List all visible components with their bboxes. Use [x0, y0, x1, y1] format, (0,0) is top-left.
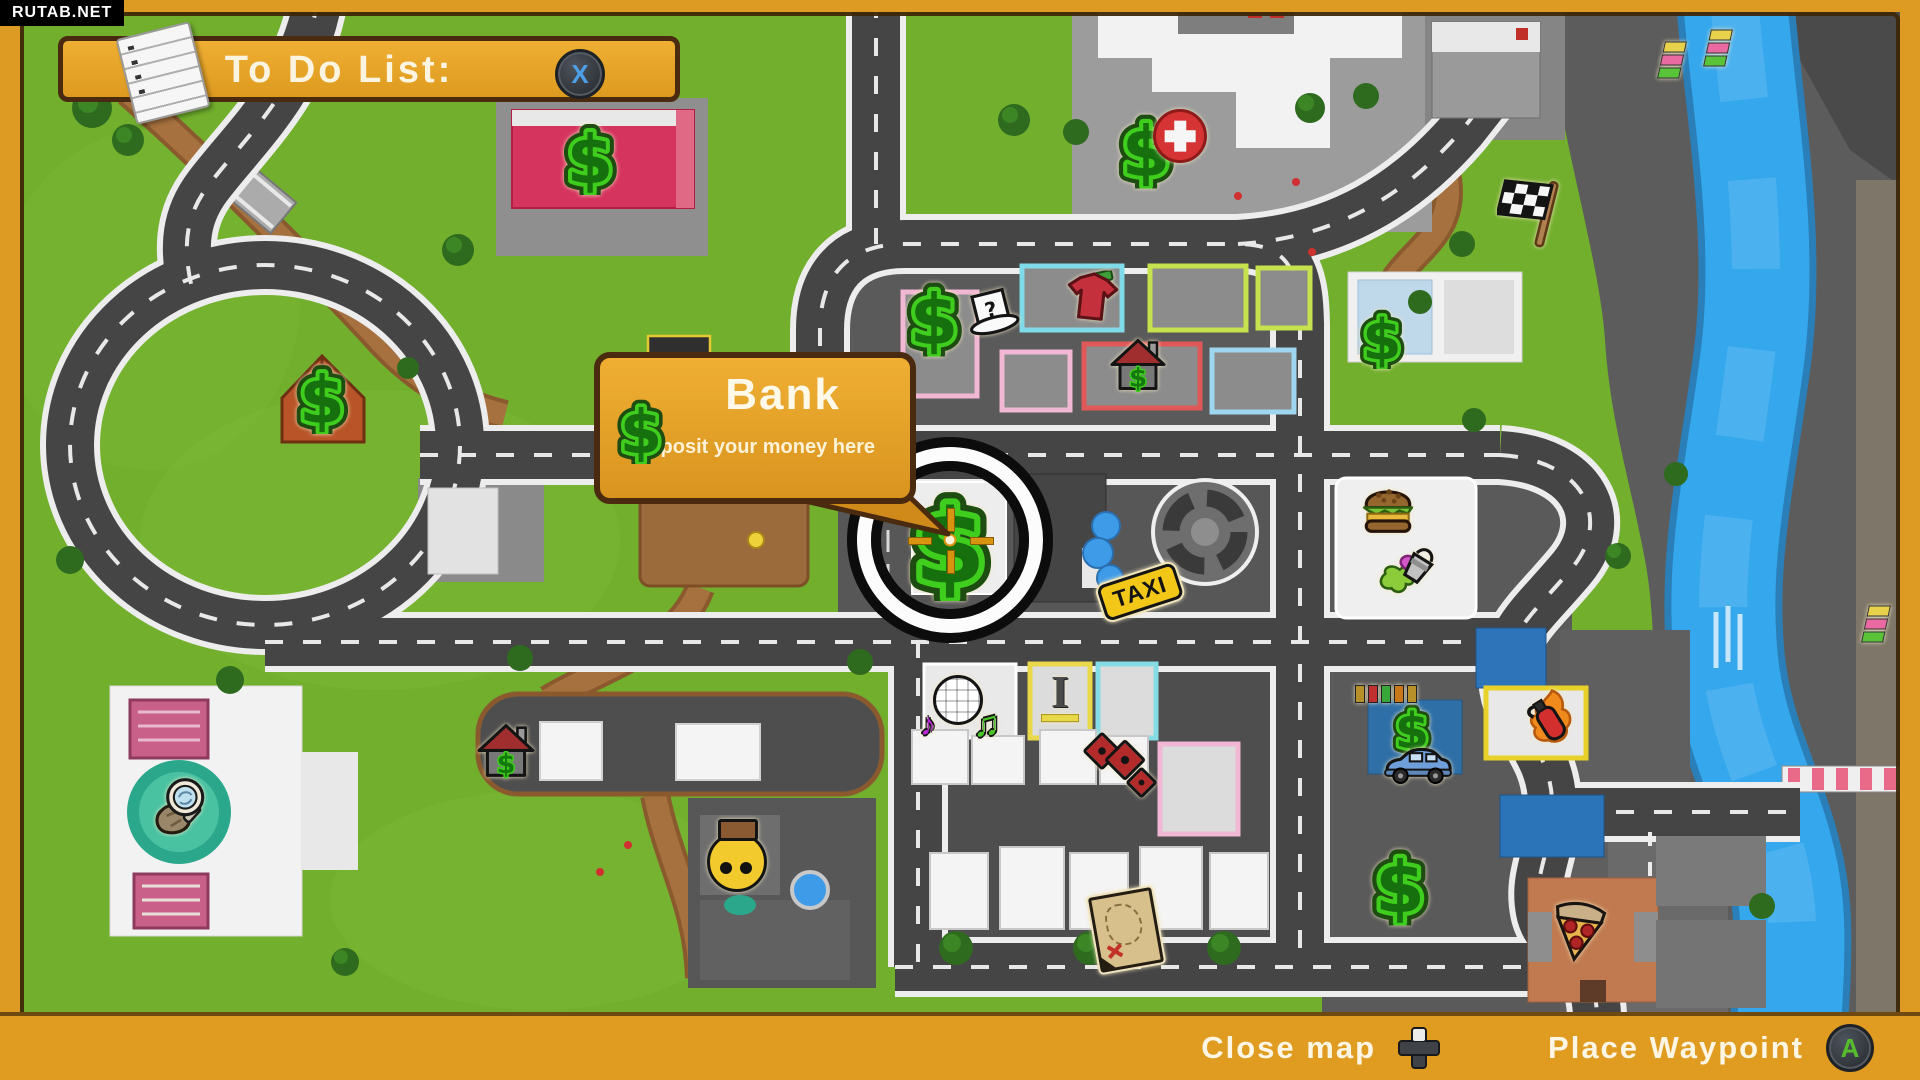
dollar-icon: $ $ — [614, 396, 668, 469]
furniture-shop-icon[interactable]: I — [1041, 674, 1079, 722]
estate-house-icon[interactable]: $ — [1109, 337, 1167, 400]
dpad-icon[interactable] — [1398, 1027, 1440, 1069]
money-topright[interactable]: $$ — [1357, 306, 1407, 374]
x-button-glyph: X — [571, 59, 588, 90]
watermark: RUTAB.NET — [0, 0, 124, 26]
money-left-hill[interactable]: $$ — [293, 361, 351, 439]
crosshair-center — [944, 534, 957, 547]
traffic-lights-icon[interactable] — [1355, 685, 1417, 703]
disco-ball-icon[interactable]: ♪♫ — [933, 675, 983, 725]
svg-text:$: $ — [299, 363, 344, 434]
svg-text:$: $ — [497, 749, 516, 780]
pizza-icon[interactable] — [1548, 900, 1608, 969]
taxi-rank-sign[interactable]: TAXI — [1100, 574, 1181, 611]
place-waypoint-label: Place Waypoint — [1548, 1030, 1804, 1066]
flags-ramp-2[interactable] — [1707, 30, 1729, 67]
close-map-label: Close map — [1201, 1030, 1376, 1066]
treasure-map-icon[interactable] — [1094, 892, 1158, 968]
svg-text:$: $ — [620, 398, 662, 464]
museum-magnifier-icon[interactable] — [146, 775, 212, 846]
fire-extinguisher-icon[interactable] — [1517, 687, 1583, 758]
svg-text:$: $ — [910, 280, 958, 357]
bank-tooltip: $ $ Bank Deposit your money here — [594, 352, 916, 504]
money-clothes-shop[interactable]: $$ — [903, 279, 965, 362]
house-left-icon[interactable]: $ — [476, 722, 536, 787]
svg-text:$: $ — [1129, 364, 1147, 394]
tshirt-shop-icon[interactable] — [1062, 271, 1122, 330]
svg-text:$: $ — [1362, 308, 1401, 369]
money-bottomright[interactable]: $$ — [1368, 846, 1432, 931]
a-button[interactable]: A — [1826, 1024, 1874, 1072]
dice-shop-icon[interactable] — [1088, 737, 1152, 795]
svg-text:$: $ — [567, 121, 614, 195]
paint-bucket-icon[interactable] — [1375, 535, 1437, 602]
hospital-cross-icon[interactable] — [1153, 109, 1207, 163]
mystery-hat-icon[interactable]: ? — [964, 285, 1020, 348]
svg-text:$: $ — [1375, 847, 1425, 926]
todo-banner: To Do List: X — [58, 36, 680, 102]
money-garage-topleft[interactable]: $$ — [560, 120, 620, 200]
burger-icon[interactable] — [1358, 480, 1418, 541]
close-todo-button[interactable]: X — [555, 49, 605, 99]
car-dealer-icon[interactable] — [1382, 747, 1454, 790]
flags-ramp-1[interactable] — [1661, 42, 1683, 79]
bottom-bar: Close map Place Waypoint A — [0, 1012, 1920, 1080]
race-flag-icon[interactable] — [1497, 170, 1567, 255]
flags-riverside[interactable] — [1865, 606, 1887, 643]
todo-banner-title: To Do List: — [63, 49, 615, 92]
game-map[interactable]: $$$$$$$$?$$$$$TAXI♪♫I$$$$$ $ $ Bank Depo… — [0, 0, 1920, 1080]
a-button-glyph: A — [1841, 1033, 1860, 1064]
smiley-balloon-icon[interactable] — [707, 832, 767, 892]
